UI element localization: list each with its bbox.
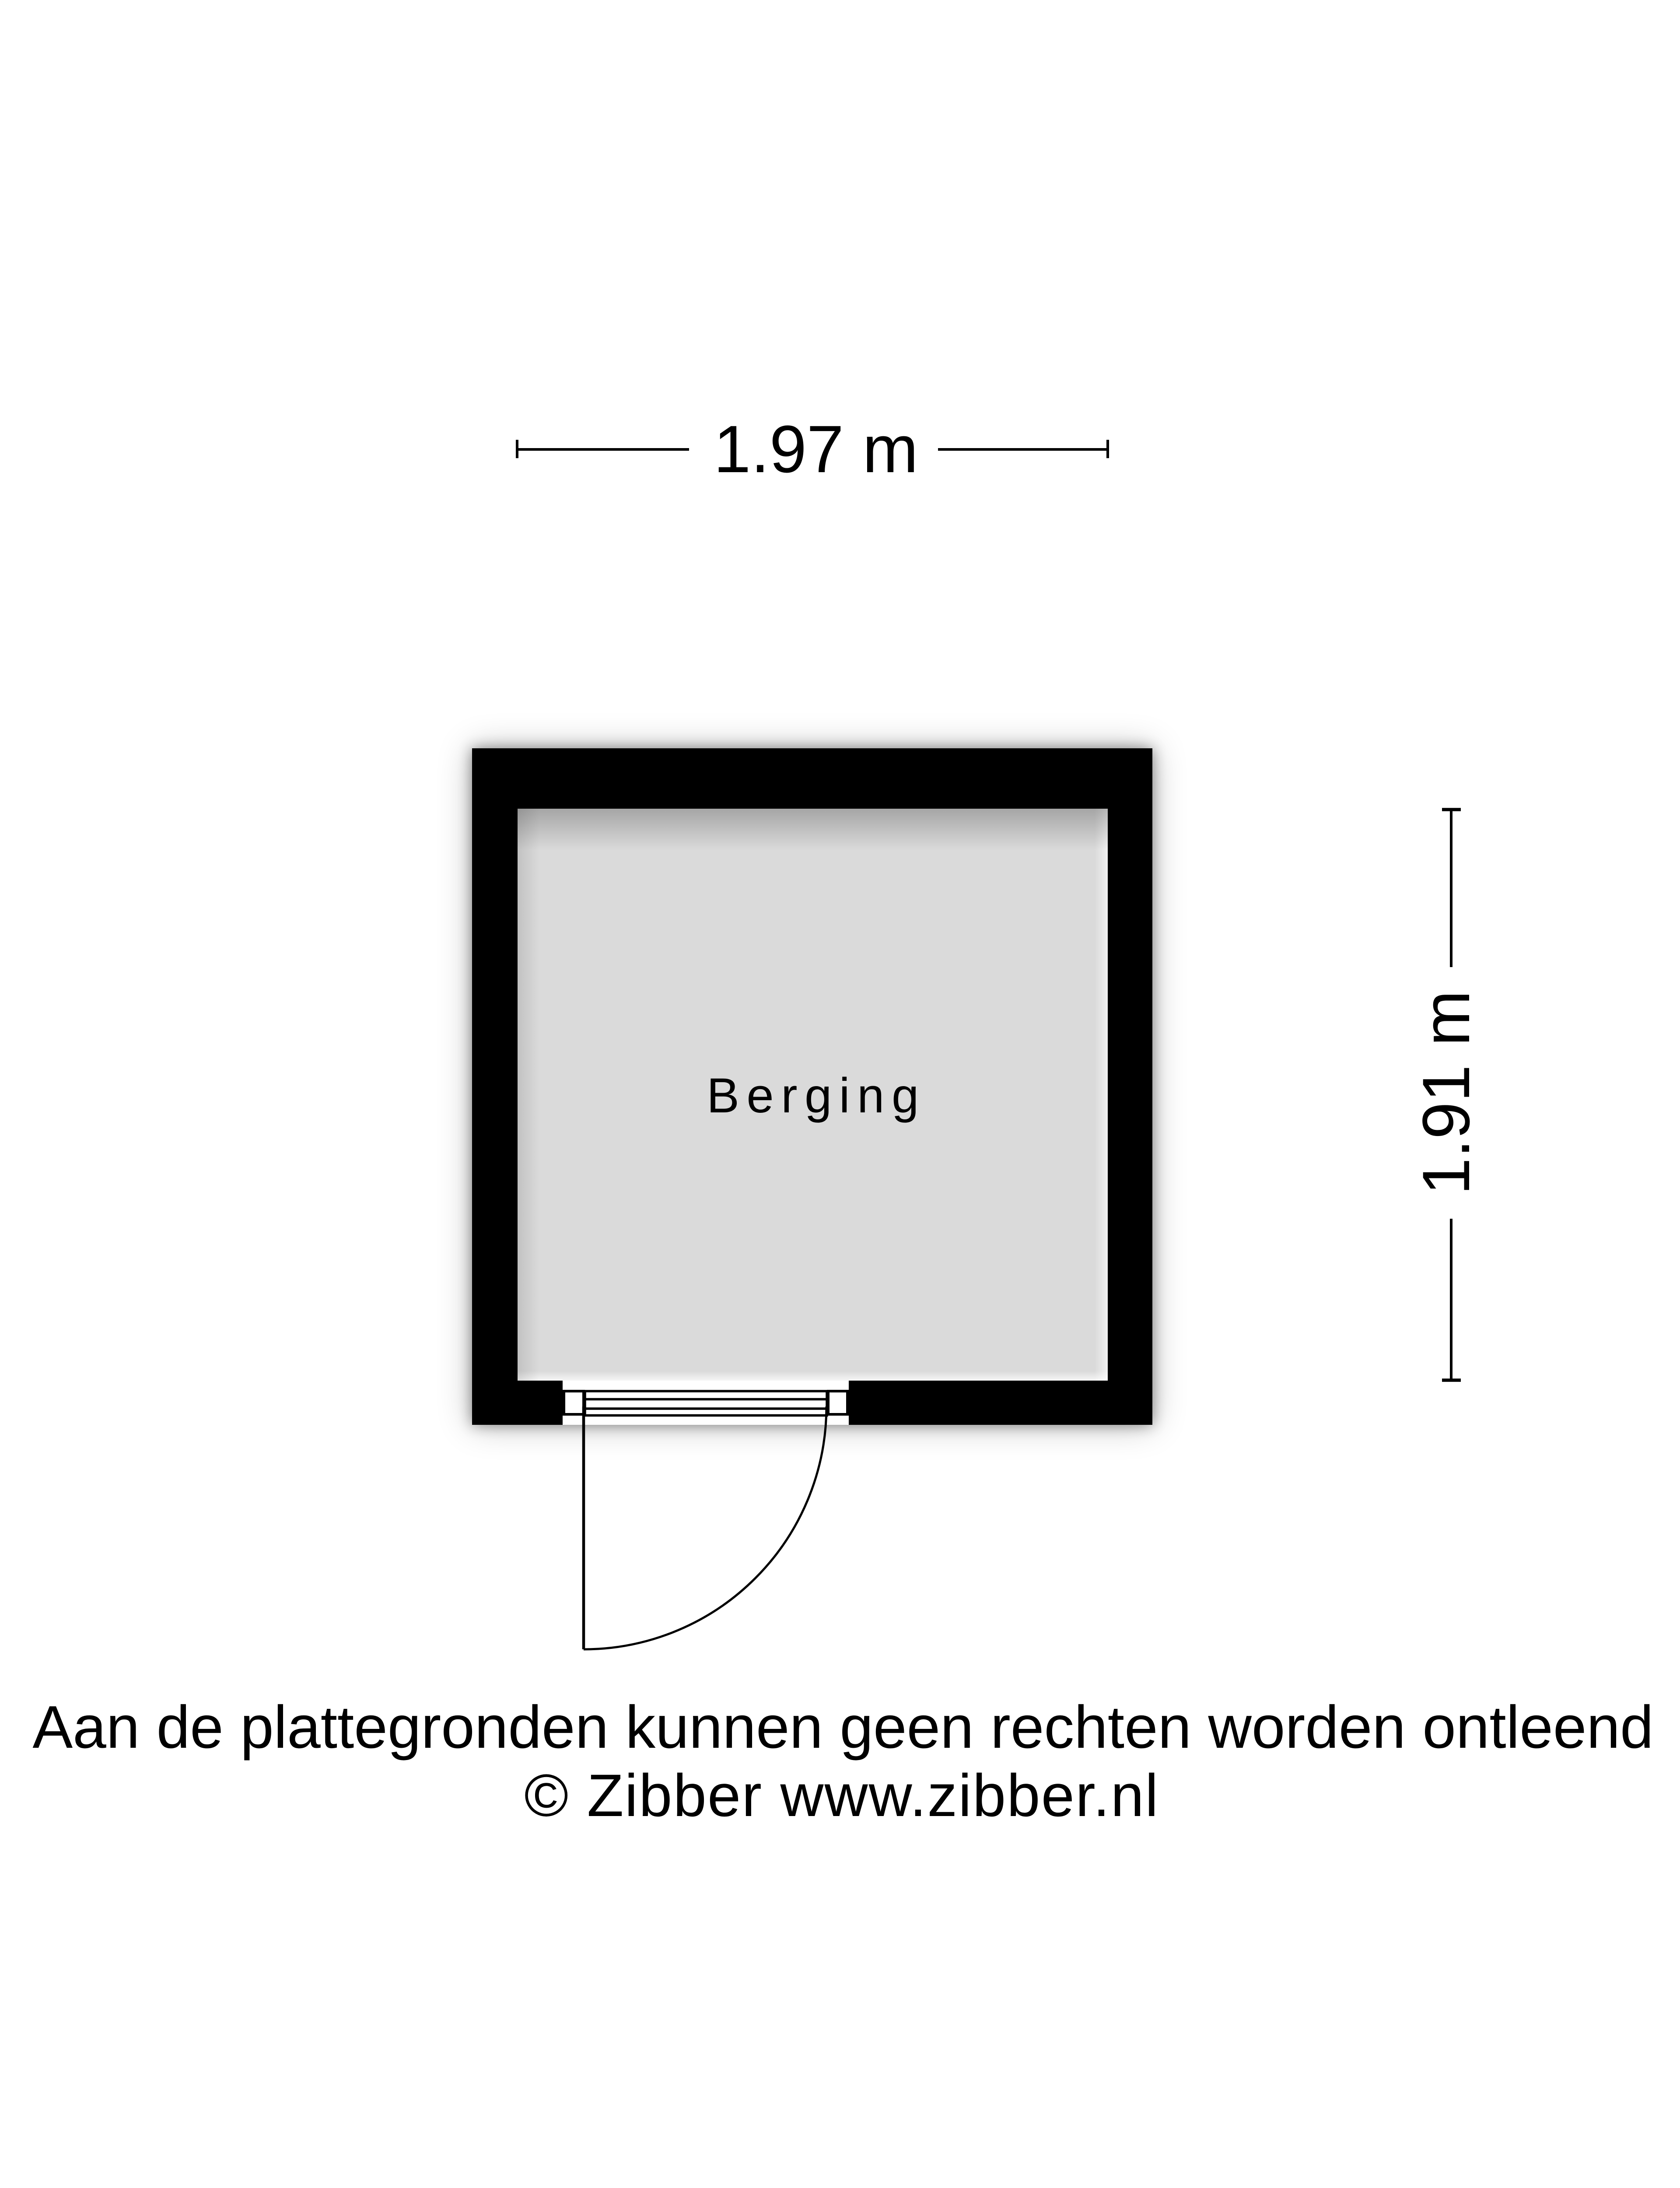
svg-text:Berging: Berging [707,1068,926,1123]
svg-text:1.91 m: 1.91 m [1409,990,1484,1195]
svg-text:© Zibber www.zibber.nl: © Zibber www.zibber.nl [524,1762,1159,1829]
svg-text:1.97 m: 1.97 m [714,412,918,487]
svg-text:Aan de plattegronden kunnen ge: Aan de plattegronden kunnen geen rechten… [32,1694,1653,1761]
